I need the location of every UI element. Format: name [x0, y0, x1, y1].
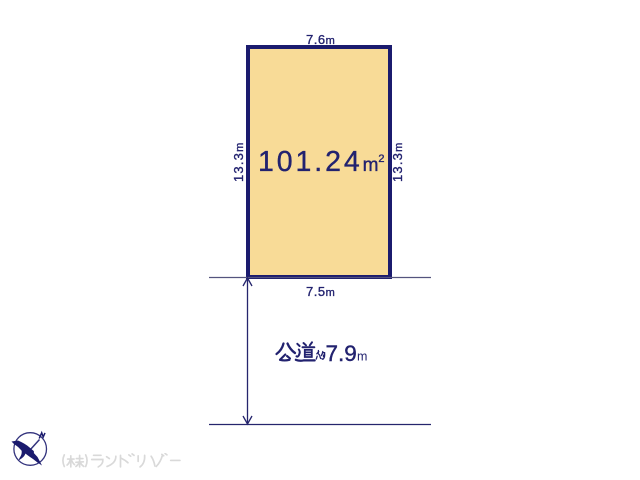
- svg-text:7.9: 7.9: [326, 341, 357, 366]
- svg-text:m: m: [357, 350, 367, 364]
